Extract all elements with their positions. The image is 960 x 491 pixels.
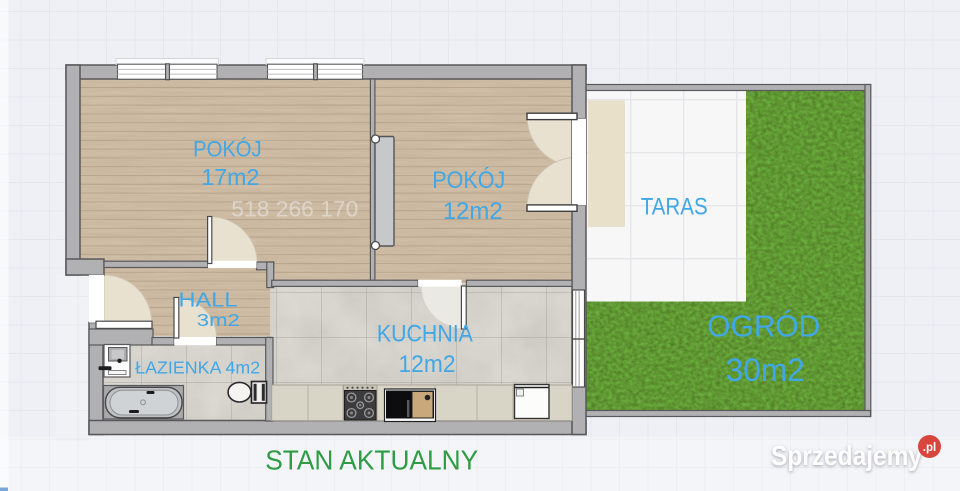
svg-text:30m2: 30m2 — [726, 352, 805, 388]
svg-text:TARAS: TARAS — [641, 193, 708, 220]
svg-text:HALL: HALL — [179, 288, 238, 311]
svg-text:.pl: .pl — [923, 442, 936, 454]
svg-text:12m2: 12m2 — [443, 198, 503, 225]
svg-text:17m2: 17m2 — [201, 164, 259, 190]
svg-text:POKÓJ: POKÓJ — [193, 137, 262, 162]
svg-text:POKÓJ: POKÓJ — [432, 167, 505, 194]
svg-text:12m2: 12m2 — [399, 351, 456, 378]
svg-text:3m2: 3m2 — [197, 310, 240, 330]
svg-text:518 266 170: 518 266 170 — [231, 197, 358, 222]
svg-text:Sprzedajemy: Sprzedajemy — [771, 440, 923, 471]
svg-text:OGRÓD: OGRÓD — [707, 309, 820, 344]
svg-text:ŁAZIENKA 4m2: ŁAZIENKA 4m2 — [135, 357, 260, 377]
svg-text:KUCHNIA: KUCHNIA — [377, 320, 473, 347]
svg-text:STAN AKTUALNY: STAN AKTUALNY — [265, 444, 478, 475]
